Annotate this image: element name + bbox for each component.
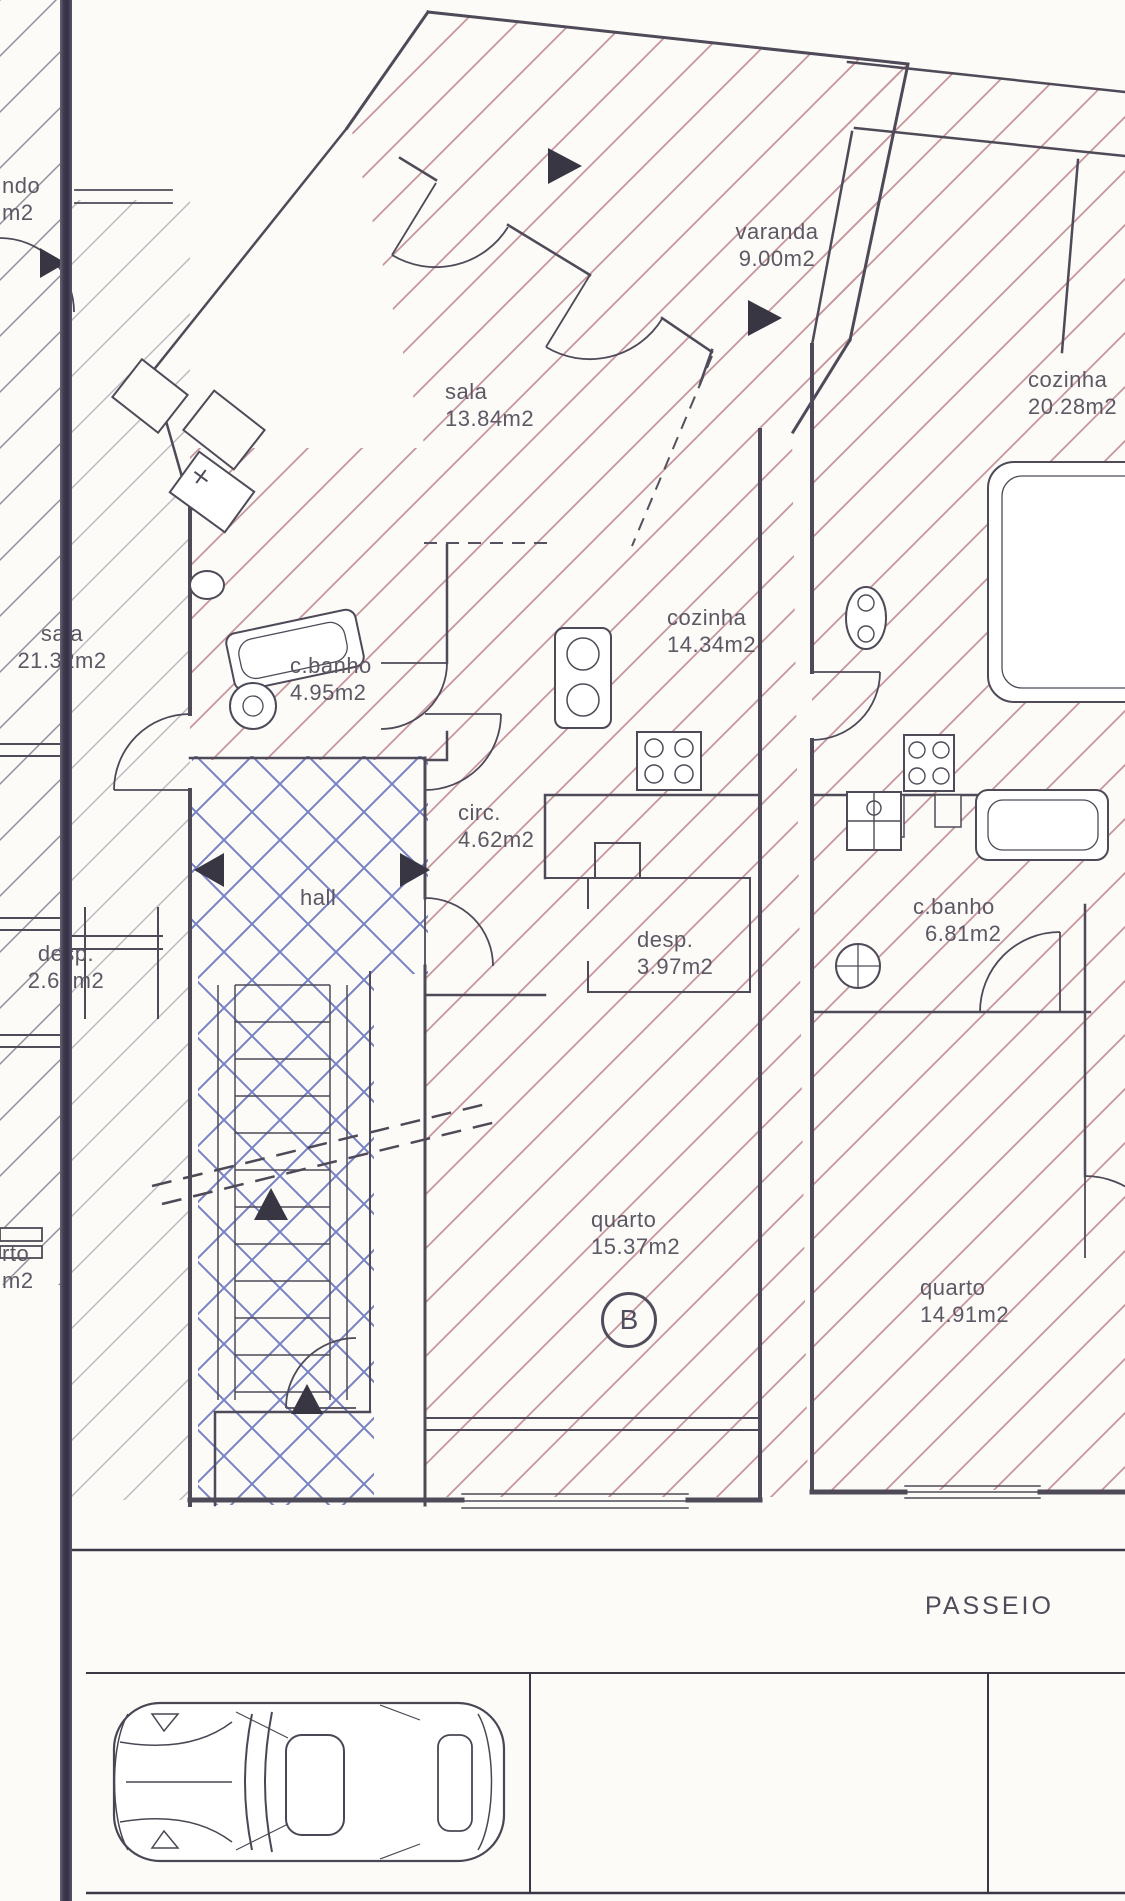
room-label-sala-b: sala13.84m2 [445,378,534,432]
unit-badge: B [601,1292,657,1348]
scanned-floor-plan-page: varanda9.00m2 sala13.84m2 cozinha20.28m2… [0,0,1125,1901]
room-label-quarto-b: quarto15.37m2 [591,1206,680,1260]
wall-jog-2 [935,795,961,827]
room-label-desp-b: desp.3.97m2 [637,926,713,980]
room-label-quarto-a-fragment: rtom2 [2,1240,34,1294]
toilet-c2 [836,944,880,988]
toilet-c [846,587,886,649]
page-fold-line [60,0,72,1901]
room-label-varanda-a-fragment: ndom2 [2,172,40,226]
toilet-b [190,571,224,599]
room-label-cbanho-c: c.banho6.81m2 [913,893,1001,947]
bathtub-c [976,790,1108,860]
kitchen-counter-c [988,462,1125,702]
room-label-hall: hall [300,884,336,911]
car-top-view [114,1703,504,1861]
street-label: PASSEIO [925,1592,1054,1621]
basin-b [230,683,276,729]
sink-c [847,792,901,850]
room-label-cozinha-c: cozinha20.28m2 [1028,366,1117,420]
hall-crosshatch [192,756,428,974]
room-label-cozinha-b: cozinha14.34m2 [667,604,756,658]
room-label-cbanho-b: c.banho4.95m2 [290,652,372,706]
room-label-quarto-c: quarto14.91m2 [920,1274,1009,1328]
room-label-varanda: varanda9.00m2 [714,218,840,272]
stove-b [637,732,701,790]
stove-c [904,735,954,791]
room-label-circ: circ.4.62m2 [458,799,534,853]
parking-stall-dividers [530,1673,988,1893]
kitchen-sink-b [555,628,611,728]
